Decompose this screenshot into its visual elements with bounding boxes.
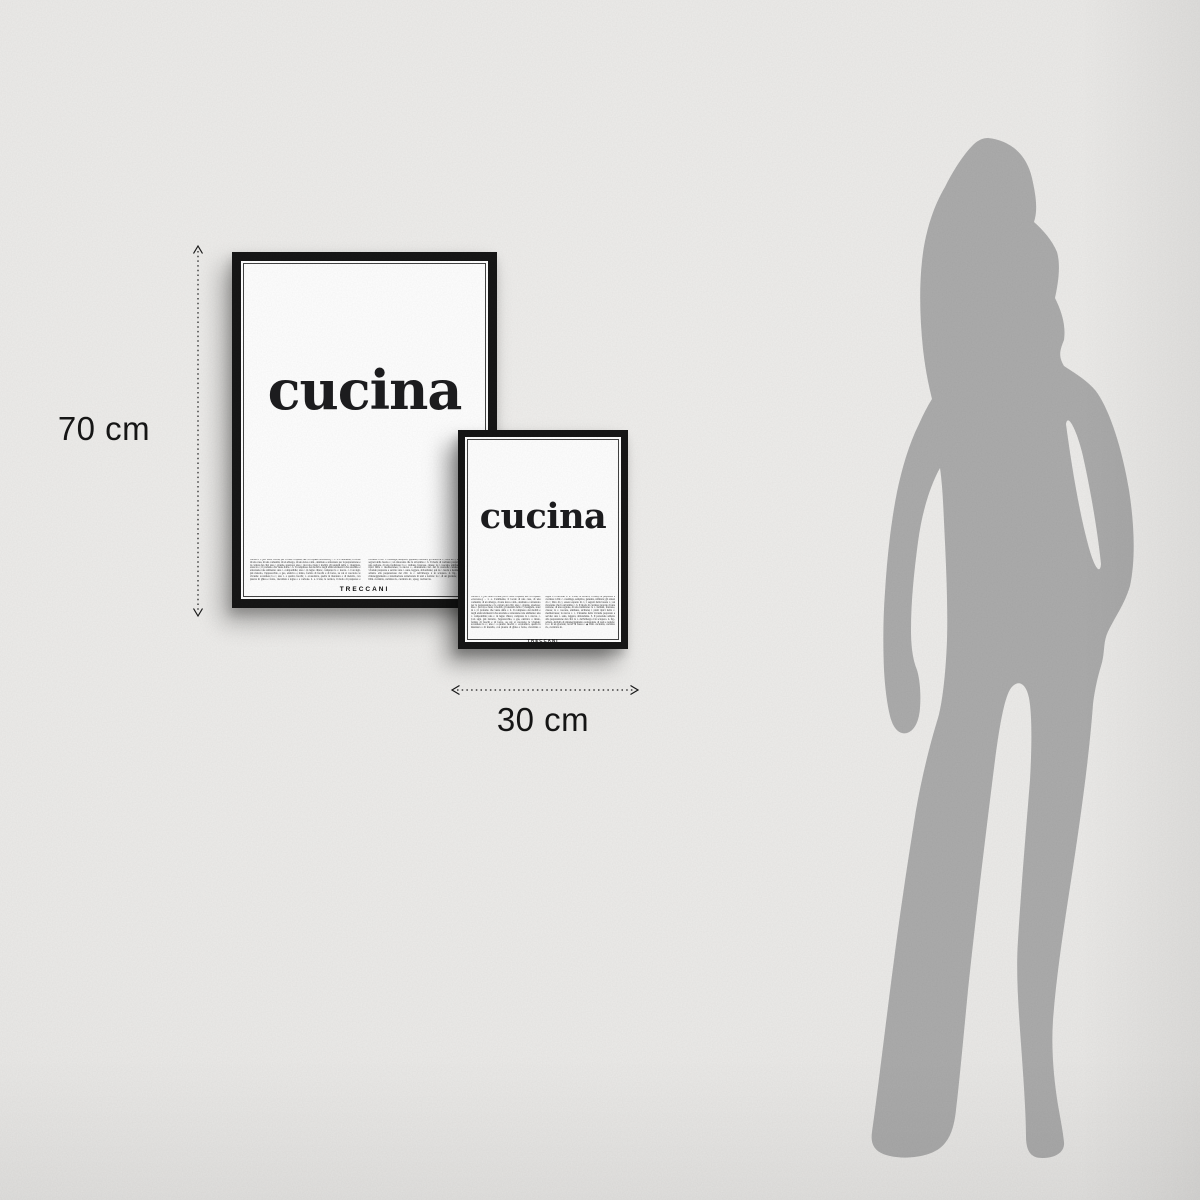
- small-poster-word: cucina: [465, 499, 621, 534]
- large-poster-paper-edge: [243, 263, 486, 597]
- person-silhouette: [855, 130, 1145, 1170]
- height-label: 70 cm: [29, 412, 179, 445]
- height-dimension-arrow: [189, 244, 207, 618]
- small-poster-definition: cucina s. f. [lat. tardo cocīna, per il …: [471, 596, 615, 636]
- wall: cucina cucina s. f. [lat. tardo cocīna, …: [0, 0, 1200, 1200]
- width-label: 30 cm: [468, 703, 618, 736]
- small-poster-brand: TRECCANI: [465, 639, 621, 643]
- small-poster-frame: cucina cucina s. f. [lat. tardo cocīna, …: [458, 430, 628, 649]
- large-poster-brand: TRECCANI: [241, 587, 488, 594]
- large-poster-word: cucina: [241, 363, 488, 417]
- large-poster-definition: cucina s. f. [lat. tardo cocīna, per il …: [250, 559, 479, 589]
- width-dimension-arrow: [450, 681, 640, 699]
